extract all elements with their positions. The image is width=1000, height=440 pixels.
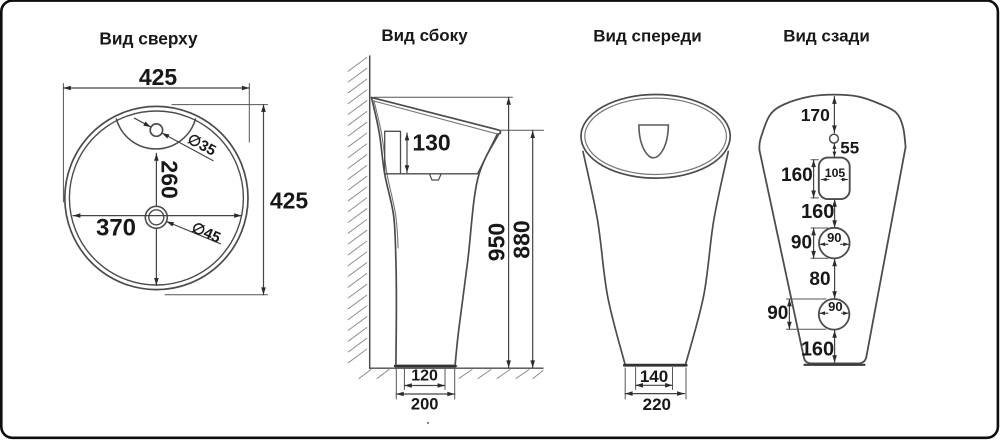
svg-text:260: 260 — [157, 160, 183, 198]
svg-text:425: 425 — [270, 187, 309, 213]
svg-text:880: 880 — [508, 220, 534, 258]
svg-text:160: 160 — [781, 165, 813, 186]
svg-text:160: 160 — [801, 201, 834, 223]
svg-text:Вид сзади: Вид сзади — [783, 26, 870, 45]
svg-text:90: 90 — [767, 303, 788, 324]
svg-text:Вид сверху: Вид сверху — [99, 28, 198, 48]
svg-text:55: 55 — [840, 139, 859, 158]
svg-text:140: 140 — [640, 367, 668, 386]
svg-text:80: 80 — [809, 269, 830, 290]
svg-text:105: 105 — [825, 166, 846, 180]
svg-text:Вид спереди: Вид спереди — [593, 26, 702, 45]
svg-text:425: 425 — [139, 64, 178, 90]
svg-text:950: 950 — [483, 223, 509, 261]
svg-text:Вид сбоку: Вид сбоку — [381, 26, 468, 45]
svg-text:220: 220 — [643, 395, 671, 414]
svg-text:160: 160 — [801, 338, 834, 360]
svg-text:170: 170 — [801, 105, 830, 125]
svg-text:90: 90 — [828, 299, 842, 314]
svg-text:200: 200 — [411, 395, 439, 413]
svg-text:90: 90 — [827, 230, 841, 245]
svg-text:370: 370 — [96, 214, 136, 241]
svg-text:90: 90 — [791, 233, 812, 254]
svg-text:130: 130 — [412, 129, 450, 155]
svg-text:120: 120 — [411, 368, 438, 385]
